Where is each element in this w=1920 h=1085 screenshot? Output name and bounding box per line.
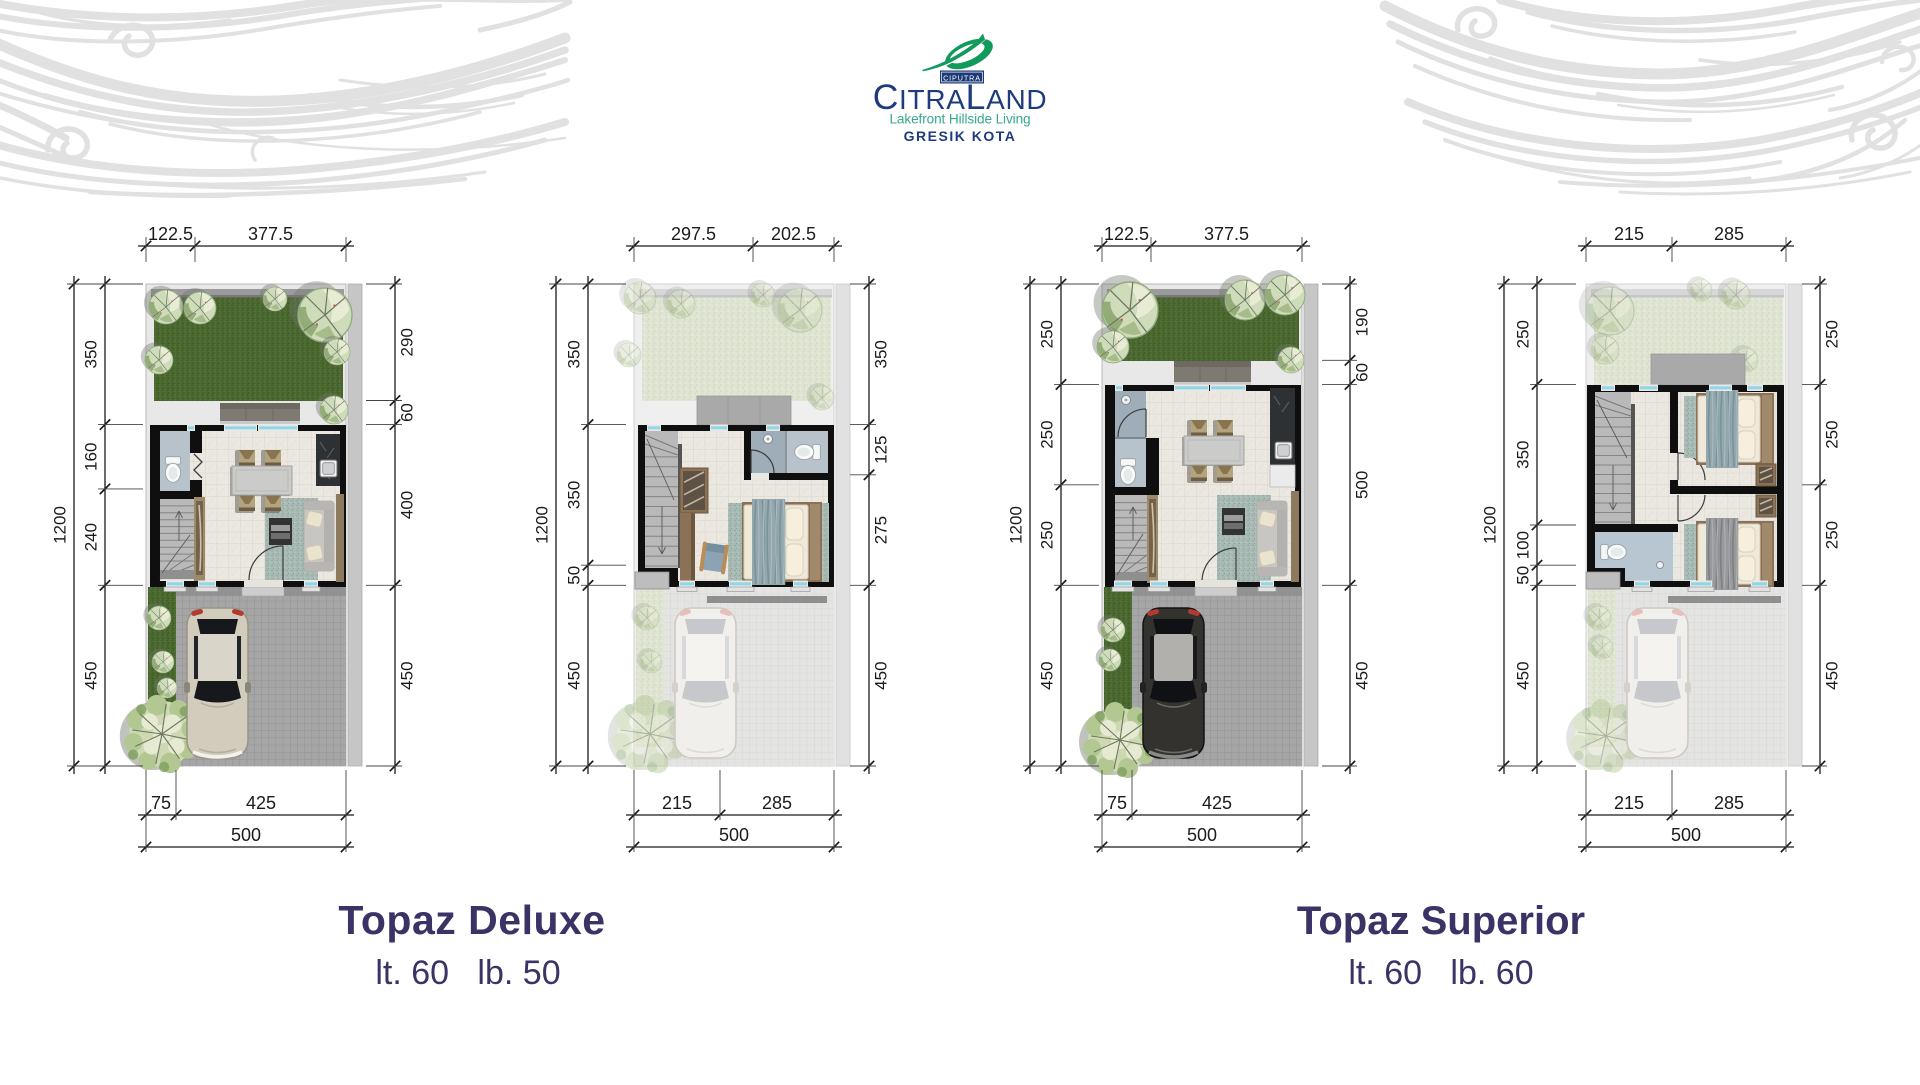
svg-text:350: 350 xyxy=(1513,441,1532,469)
svg-text:75: 75 xyxy=(151,793,171,813)
svg-text:450: 450 xyxy=(1513,661,1532,689)
svg-text:Lakefront Hillside Living: Lakefront Hillside Living xyxy=(889,112,1030,127)
svg-text:450: 450 xyxy=(871,661,890,689)
svg-text:450: 450 xyxy=(397,661,416,689)
svg-text:202.5: 202.5 xyxy=(771,224,816,244)
svg-text:250: 250 xyxy=(1822,521,1841,549)
svg-text:215: 215 xyxy=(1614,224,1644,244)
svg-text:215: 215 xyxy=(1614,793,1644,813)
svg-text:125: 125 xyxy=(871,436,890,464)
svg-text:50: 50 xyxy=(564,566,583,585)
svg-text:290: 290 xyxy=(397,328,416,356)
svg-text:122.5: 122.5 xyxy=(1104,224,1149,244)
svg-text:350: 350 xyxy=(564,481,583,509)
svg-text:350: 350 xyxy=(564,340,583,368)
svg-text:400: 400 xyxy=(397,491,416,519)
svg-text:60: 60 xyxy=(1352,363,1371,382)
svg-text:190: 190 xyxy=(1352,308,1371,336)
svg-text:425: 425 xyxy=(246,793,276,813)
svg-text:500: 500 xyxy=(1671,825,1701,845)
svg-text:215: 215 xyxy=(662,793,692,813)
svg-text:450: 450 xyxy=(81,661,100,689)
svg-text:500: 500 xyxy=(1352,471,1371,499)
svg-text:60: 60 xyxy=(397,403,416,422)
svg-text:240: 240 xyxy=(81,523,100,551)
svg-text:377.5: 377.5 xyxy=(1204,224,1249,244)
svg-text:450: 450 xyxy=(564,661,583,689)
svg-text:425: 425 xyxy=(1202,793,1232,813)
svg-text:Topaz Superior: Topaz Superior xyxy=(1297,899,1585,943)
svg-text:285: 285 xyxy=(1714,793,1744,813)
svg-text:1200: 1200 xyxy=(1480,506,1499,544)
svg-text:lt. 60 lb. 50: lt. 60 lb. 50 xyxy=(375,954,560,992)
svg-text:75: 75 xyxy=(1107,793,1127,813)
svg-text:100: 100 xyxy=(1513,531,1532,559)
svg-text:GRESIK KOTA: GRESIK KOTA xyxy=(904,128,1017,144)
svg-text:450: 450 xyxy=(1037,661,1056,689)
svg-text:250: 250 xyxy=(1822,320,1841,348)
svg-text:250: 250 xyxy=(1037,420,1056,448)
svg-text:250: 250 xyxy=(1513,320,1532,348)
svg-text:275: 275 xyxy=(871,516,890,544)
svg-text:250: 250 xyxy=(1822,420,1841,448)
svg-text:250: 250 xyxy=(1037,320,1056,348)
svg-text:Topaz Deluxe: Topaz Deluxe xyxy=(338,897,605,943)
svg-text:285: 285 xyxy=(1714,224,1744,244)
svg-text:160: 160 xyxy=(81,443,100,471)
svg-text:350: 350 xyxy=(871,340,890,368)
svg-text:500: 500 xyxy=(231,825,261,845)
svg-text:1200: 1200 xyxy=(532,506,551,544)
svg-text:250: 250 xyxy=(1037,521,1056,549)
svg-text:500: 500 xyxy=(1187,825,1217,845)
svg-text:50: 50 xyxy=(1513,566,1532,585)
svg-text:122.5: 122.5 xyxy=(148,224,193,244)
svg-text:450: 450 xyxy=(1822,661,1841,689)
svg-text:lt. 60 lb. 60: lt. 60 lb. 60 xyxy=(1348,954,1533,992)
svg-text:450: 450 xyxy=(1352,661,1371,689)
svg-text:1200: 1200 xyxy=(1006,506,1025,544)
svg-text:377.5: 377.5 xyxy=(248,224,293,244)
svg-text:1200: 1200 xyxy=(50,506,69,544)
svg-text:500: 500 xyxy=(719,825,749,845)
svg-text:297.5: 297.5 xyxy=(671,224,716,244)
svg-text:350: 350 xyxy=(81,340,100,368)
svg-text:285: 285 xyxy=(762,793,792,813)
